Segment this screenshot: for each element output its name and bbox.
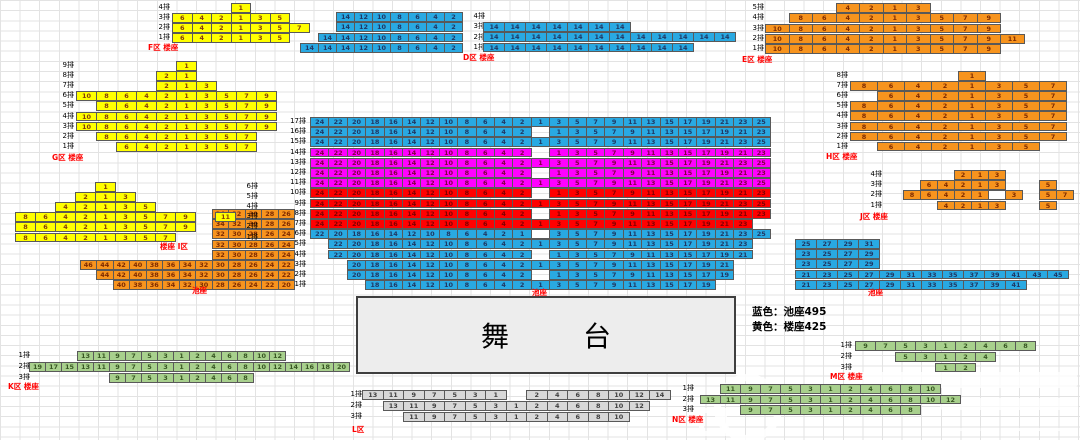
seat-cell: 13 — [362, 390, 384, 400]
seat-cell: 6 — [476, 148, 495, 158]
seat-cell: 12 — [940, 395, 961, 405]
seat-cell: 9 — [740, 405, 761, 415]
seat-cell: 22 — [328, 148, 347, 158]
seat-cell: 6 — [476, 250, 495, 260]
d-block-title: D区 楼座 — [463, 53, 494, 63]
seat-cell: 12 — [420, 219, 439, 229]
seat-cell: 3 — [985, 142, 1013, 152]
seat-cell: 5 — [444, 390, 466, 400]
seat-cell: 12 — [269, 351, 286, 361]
seat-cell: 2 — [156, 81, 177, 91]
seat-cell: 1 — [95, 233, 116, 243]
seat-cell: 20 — [328, 229, 347, 239]
seat-cell: 22 — [278, 260, 296, 270]
seat-cell: 23 — [733, 178, 752, 188]
seat-cell: 4 — [904, 81, 932, 91]
seat-cell: 1 — [531, 219, 550, 229]
seat-cell: 14 — [504, 43, 526, 53]
seat-cell: 14 — [402, 148, 421, 158]
seat-cell: 3 — [250, 13, 271, 23]
seat-cell: 8 — [900, 395, 921, 405]
seat-cell: 28 — [228, 260, 246, 270]
seat-cell: 29 — [858, 249, 880, 259]
seat-cell: 8 — [903, 190, 921, 200]
seat-cell: 2 — [931, 91, 959, 101]
seat-cell: 11 — [623, 117, 642, 127]
seat-cell: 6 — [476, 219, 495, 229]
seat-cell: 17 — [696, 209, 715, 219]
seat-cell: 6 — [116, 91, 137, 101]
seat-cell: 14 — [402, 270, 421, 280]
seat-cell: 10 — [608, 412, 630, 422]
seat-cell: 1 — [95, 182, 116, 192]
seat-cell: 6 — [880, 395, 901, 405]
seat-cell: 7 — [586, 260, 605, 270]
seat-cell: 1 — [176, 132, 197, 142]
seat-cell: 3 — [568, 270, 587, 280]
e-block-row-label: 3排 — [742, 23, 764, 33]
seat-cell: 9 — [855, 341, 876, 351]
seat-cell: 5 — [930, 24, 955, 34]
seat-cell: 6 — [877, 101, 905, 111]
seat-cell: 18 — [365, 137, 384, 147]
seat-cell: 2 — [75, 212, 96, 222]
seat-cell: 15 — [660, 280, 679, 290]
seat-cell: 2 — [75, 233, 96, 243]
seat-cell: 31 — [900, 280, 922, 290]
seat-cell: 6 — [172, 23, 193, 33]
seat-cell: 2 — [512, 148, 531, 158]
seat-cell: 4 — [860, 395, 881, 405]
seat-cell: 1 — [176, 91, 197, 101]
seat-cell: 3 — [549, 199, 568, 209]
seat-cell: 14 — [336, 43, 355, 53]
seat-cell: 19 — [696, 260, 715, 270]
seat-cell: 14 — [630, 43, 652, 53]
seat-cell: 10 — [76, 91, 97, 101]
seat-cell: 36 — [162, 270, 180, 280]
h-block-title: H区 楼座 — [826, 152, 857, 162]
seat-cell: 4 — [494, 280, 513, 290]
seat-cell: 42 — [113, 270, 131, 280]
seat-cell: 1 — [820, 405, 841, 415]
seat-cell: 4 — [975, 341, 996, 351]
seat-cell: 11 — [623, 158, 642, 168]
seat-cell: 14 — [318, 43, 337, 53]
seat-cell: 6 — [116, 122, 137, 132]
seat-cell: 36 — [162, 260, 180, 270]
seat-cell: 9 — [604, 178, 623, 188]
seat-cell: 21 — [715, 219, 734, 229]
i-block-row-label: 4排 — [236, 201, 258, 211]
seat-cell: 8 — [457, 158, 476, 168]
seat-cell: 5 — [895, 341, 916, 351]
seat-cell: 11 — [403, 401, 425, 411]
seat-cell: 6 — [476, 199, 495, 209]
seat-cell: 3 — [549, 137, 568, 147]
seat-cell: 9 — [977, 44, 1002, 54]
seat-cell: 9 — [623, 250, 642, 260]
stage-label-char1: 舞 — [481, 315, 509, 355]
seat-cell: 4 — [55, 233, 76, 243]
seat-cell: 9 — [256, 112, 277, 122]
seat-cell: 4 — [836, 3, 861, 13]
seat-cell: 1 — [95, 202, 116, 212]
seat-cell: 3 — [915, 341, 936, 351]
seat-cell: 7 — [586, 199, 605, 209]
seat-cell: 8 — [15, 222, 36, 232]
seat-cell: 1 — [231, 13, 252, 23]
seat-cell: 26 — [278, 219, 296, 229]
seat-cell: 1 — [549, 148, 568, 158]
seat-cell: 3 — [157, 351, 174, 361]
seat-cell: 23 — [752, 168, 771, 178]
seat-cell: 8 — [390, 12, 409, 22]
seat-cell: 24 — [310, 219, 329, 229]
seat-cell: 38 — [146, 270, 164, 280]
seat-cell: 13 — [383, 401, 405, 411]
seat-cell: 14 — [402, 178, 421, 188]
seat-cell: 4 — [547, 412, 569, 422]
seat-cell: 4 — [136, 132, 157, 142]
seat-cell: 3 — [549, 219, 568, 229]
seat-cell: 9 — [604, 219, 623, 229]
seat-cell: 23 — [733, 229, 752, 239]
seat-cell: 3 — [988, 180, 1006, 190]
seat-cell: 6 — [408, 22, 427, 32]
seat-cell: 18 — [365, 250, 384, 260]
seat-cell: 12 — [354, 22, 373, 32]
n-block-title: N区 楼座 — [672, 415, 703, 425]
seat-cell: 5 — [1012, 142, 1040, 152]
seat-cell: 7 — [586, 178, 605, 188]
seat-cell: 21 — [715, 199, 734, 209]
seat-cell: 3 — [568, 148, 587, 158]
seat-cell: 10 — [439, 270, 458, 280]
seat-cell: 2 — [954, 170, 972, 180]
seat-cell: 3 — [568, 127, 587, 137]
l-block-title: L区 — [352, 425, 364, 435]
seat-cell: 4 — [494, 137, 513, 147]
seat-cell: 16 — [365, 229, 384, 239]
seat-cell: 4 — [975, 352, 996, 362]
seat-cell: 12 — [420, 250, 439, 260]
seat-cell: 26 — [261, 240, 279, 250]
seat-cell: 14 — [567, 32, 589, 42]
seat-cell: 12 — [269, 362, 286, 372]
seat-cell: 6 — [567, 412, 589, 422]
seat-cell: 23 — [733, 239, 752, 249]
seat-cell: 12 — [402, 229, 421, 239]
seat-cell: 7 — [236, 122, 257, 132]
seat-cell: 6 — [920, 180, 938, 190]
seat-cell: 25 — [795, 239, 817, 249]
seat-cell: 1 — [958, 91, 986, 101]
seat-cell: 3 — [915, 352, 936, 362]
seat-cell: 10 — [765, 34, 790, 44]
g-block-row-label: 7排 — [52, 80, 74, 90]
seat-cell: 9 — [977, 34, 1002, 44]
seat-cell: 7 — [236, 142, 257, 152]
h-block-row-label: 7排 — [826, 80, 848, 90]
seat-cell: 2 — [931, 101, 959, 111]
seat-cell: 9 — [403, 390, 425, 400]
seat-cell: 20 — [347, 209, 366, 219]
seat-cell: 7 — [1039, 111, 1067, 121]
seat-cell: 23 — [733, 158, 752, 168]
seat-cell: 8 — [457, 117, 476, 127]
seat-cell: 2 — [526, 412, 548, 422]
seat-cell: 5 — [1012, 111, 1040, 121]
seat-cell: 1 — [176, 122, 197, 132]
h-block-row-label: 5排 — [826, 100, 848, 110]
seat-cell: 28 — [228, 270, 246, 280]
g-block-title: G区 楼座 — [52, 153, 83, 163]
seat-cell: 25 — [837, 270, 859, 280]
seat-cell: 21 — [795, 270, 817, 280]
seat-cell: 19 — [715, 188, 734, 198]
seat-cell: 34 — [179, 270, 197, 280]
seat-cell: 4 — [136, 112, 157, 122]
seat-cell: 31 — [900, 270, 922, 280]
seat-cell: 8 — [96, 91, 117, 101]
seat-cell: 11 — [403, 412, 425, 422]
seat-cell: 25 — [816, 249, 838, 259]
seat-cell: 2 — [156, 71, 177, 81]
seat-cell: 14 — [402, 209, 421, 219]
seat-cell: 4 — [547, 390, 569, 400]
n-block-row-label: 1排 — [672, 383, 694, 393]
seat-cell: 16 — [384, 158, 403, 168]
seat-cell: 3 — [465, 390, 487, 400]
seat-cell: 14 — [546, 43, 568, 53]
seat-cell: 5 — [135, 222, 156, 232]
seat-cell: 16 — [384, 168, 403, 178]
seat-cell: 6 — [812, 13, 837, 23]
seat-cell: 17 — [678, 178, 697, 188]
seat-cell: 13 — [641, 219, 660, 229]
seat-cell: 7 — [953, 13, 978, 23]
seat-cell: 8 — [588, 412, 610, 422]
seat-cell: 20 — [347, 168, 366, 178]
seat-cell: 4 — [860, 405, 881, 415]
seat-cell: 14 — [402, 117, 421, 127]
seat-cell: 40 — [113, 280, 131, 290]
center-block-row-label: 11排 — [284, 177, 306, 187]
seat-cell: 3 — [549, 158, 568, 168]
seat-cell: 6 — [476, 188, 495, 198]
seat-cell: 14 — [300, 43, 319, 53]
seat-cell: 16 — [384, 178, 403, 188]
seat-cell: 20 — [347, 127, 366, 137]
seat-cell: 5 — [465, 401, 487, 411]
seat-cell: 7 — [875, 341, 896, 351]
seat-cell: 17 — [678, 239, 697, 249]
seat-cell: 6 — [476, 209, 495, 219]
seat-cell: 1 — [531, 239, 550, 249]
seat-cell: 10 — [253, 362, 270, 372]
seat-cell: 2 — [512, 239, 531, 249]
seat-cell: 13 — [641, 158, 660, 168]
seat-cell: 9 — [604, 158, 623, 168]
seat-cell: 10 — [439, 199, 458, 209]
seat-cell: 4 — [494, 158, 513, 168]
seat-cell: 3 — [568, 209, 587, 219]
seat-cell: 8 — [457, 250, 476, 260]
seat-cell: 1 — [176, 101, 197, 111]
seat-cell: 5 — [930, 13, 955, 23]
seat-cell: 18 — [365, 270, 384, 280]
g-block-row-label: 4排 — [52, 111, 74, 121]
seat-cell: 37 — [963, 270, 985, 280]
j-block-row-label: 3排 — [860, 179, 882, 189]
seat-cell: 14 — [525, 22, 547, 32]
seat-cell: 5 — [568, 280, 587, 290]
seat-cell: 4 — [904, 132, 932, 142]
seat-cell: 8 — [900, 384, 921, 394]
seat-cell: 16 — [384, 260, 403, 270]
seat-cell: 22 — [278, 270, 296, 280]
seat-cell: 20 — [347, 199, 366, 209]
seat-cell: 8 — [457, 178, 476, 188]
seat-cell: 1 — [531, 260, 550, 270]
seat-cell: 1 — [549, 188, 568, 198]
seat-cell: 2 — [444, 43, 463, 53]
seat-cell: 15 — [660, 260, 679, 270]
seat-cell: 8 — [96, 132, 117, 142]
seat-cell: 21 — [733, 148, 752, 158]
seat-cell: 1 — [95, 192, 116, 202]
seat-cell: 5 — [895, 352, 916, 362]
seat-cell: 10 — [765, 44, 790, 54]
seat-cell: 5 — [780, 405, 801, 415]
seat-cell: 16 — [384, 280, 403, 290]
seat-cell: 10 — [372, 43, 391, 53]
pool-label-0: 池座 — [192, 286, 207, 296]
seat-cell: 38 — [146, 260, 164, 270]
seat-cell: 1 — [531, 137, 550, 147]
seat-cell: 1 — [531, 178, 550, 188]
seat-cell: 2 — [211, 13, 232, 23]
center-block-row-label: 16排 — [284, 126, 306, 136]
seat-cell: 17 — [696, 270, 715, 280]
seat-cell: 14 — [402, 188, 421, 198]
n-block-row-label: 3排 — [672, 404, 694, 414]
seat-cell: 18 — [365, 239, 384, 249]
seat-cell: 7 — [586, 117, 605, 127]
seat-cell: 2 — [526, 401, 548, 411]
seat-cell: 7 — [1039, 122, 1067, 132]
seat-cell: 20 — [347, 148, 366, 158]
seat-cell: 20 — [347, 219, 366, 229]
seat-cell: 5 — [586, 209, 605, 219]
seat-cell: 3 — [985, 91, 1013, 101]
seat-cell: 8 — [457, 260, 476, 270]
seat-cell: 6 — [812, 24, 837, 34]
seat-cell: 13 — [641, 199, 660, 209]
seat-cell: 2 — [512, 270, 531, 280]
seat-cell: 5 — [465, 412, 487, 422]
seat-cell: 11 — [623, 137, 642, 147]
seat-cell: 24 — [310, 117, 329, 127]
seat-cell: 3 — [485, 401, 507, 411]
k-block-title: K区 楼座 — [8, 382, 39, 392]
seat-cell: 6 — [476, 178, 495, 188]
seat-cell: 24 — [310, 127, 329, 137]
seat-cell: 13 — [641, 229, 660, 239]
seat-cell: 3 — [196, 112, 217, 122]
seat-cell: 8 — [850, 111, 878, 121]
seat-cell: 18 — [365, 199, 384, 209]
seat-cell: 18 — [365, 219, 384, 229]
seat-cell: 23 — [816, 280, 838, 290]
seat-cell: 4 — [494, 168, 513, 178]
g-block-row-label: 6排 — [52, 90, 74, 100]
seat-cell: 9 — [623, 148, 642, 158]
seat-cell: 8 — [900, 405, 921, 415]
seat-cell: 3 — [568, 188, 587, 198]
seat-cell: 19 — [696, 117, 715, 127]
seat-cell: 3 — [115, 202, 136, 212]
seat-cell: 2 — [931, 132, 959, 142]
seat-cell: 5 — [1012, 81, 1040, 91]
seat-cell: 7 — [155, 222, 176, 232]
seat-cell: 7 — [586, 137, 605, 147]
seat-cell: 24 — [261, 270, 279, 280]
seat-cell: 11 — [623, 199, 642, 209]
seat-cell: 9 — [604, 260, 623, 270]
seat-cell: 4 — [205, 362, 222, 372]
seat-cell: 8 — [850, 101, 878, 111]
seat-cell: 21 — [733, 127, 752, 137]
seat-cell: 6 — [476, 158, 495, 168]
seat-cell: 4 — [426, 43, 445, 53]
seat-cell: 8 — [789, 44, 814, 54]
seat-cell: 4 — [494, 127, 513, 137]
seat-cell: 25 — [837, 280, 859, 290]
seat-cell: 4 — [192, 13, 213, 23]
seat-cell: 16 — [384, 239, 403, 249]
seat-cell: 1 — [883, 34, 908, 44]
seat-cell: 3 — [800, 384, 821, 394]
seat-cell: 13 — [660, 209, 679, 219]
seat-cell: 2 — [931, 111, 959, 121]
seat-cell: 15 — [678, 127, 697, 137]
seat-cell: 12 — [420, 137, 439, 147]
seat-cell: 1 — [231, 23, 252, 33]
seat-cell: 13 — [660, 148, 679, 158]
seat-cell: 2 — [840, 405, 861, 415]
seat-cell: 22 — [328, 250, 347, 260]
h-block-row-label: 3排 — [826, 121, 848, 131]
seat-cell: 14 — [402, 239, 421, 249]
seat-cell: 28 — [261, 209, 279, 219]
seat-cell: 21 — [715, 260, 734, 270]
seat-cell: 4 — [836, 34, 861, 44]
seat-cell: 10 — [439, 148, 458, 158]
seat-cell: 5 — [270, 33, 291, 43]
seat-cell: 14 — [402, 127, 421, 137]
seat-cell: 10 — [920, 384, 941, 394]
seat-cell: 22 — [328, 219, 347, 229]
seat-cell: 3 — [906, 34, 931, 44]
seat-cell: 5 — [1039, 180, 1057, 190]
seat-cell: 8 — [789, 34, 814, 44]
seat-cell: 1 — [958, 101, 986, 111]
seat-cell: 2 — [859, 3, 884, 13]
seat-cell: 24 — [310, 188, 329, 198]
seat-cell: 14 — [336, 33, 355, 43]
